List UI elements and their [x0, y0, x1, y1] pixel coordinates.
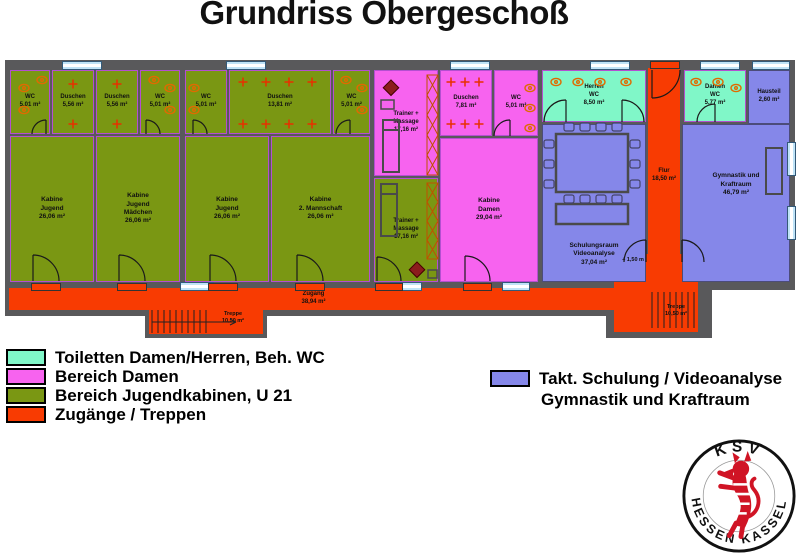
legend-label: Gymnastik und Kraftraum [541, 390, 750, 410]
room-label: Kabine Jugend Mädchen 26,06 m² [124, 192, 152, 226]
door-sill [208, 283, 238, 291]
room-duschen-3: Duschen 13,81 m² [229, 70, 331, 134]
legend-swatch-olive [6, 387, 46, 404]
door-sill [295, 283, 325, 291]
legend-swatch-orange [6, 406, 46, 423]
room-damen-wc: Damen WC 5,77 m² [684, 70, 746, 122]
label-treppe-left: Treppe 10,50 m² [206, 311, 260, 325]
window [752, 61, 790, 70]
room-gymnastik: Gymnastik und Kraftraum 46,79 m² [682, 124, 790, 282]
door-sill [650, 61, 680, 69]
room-label: Damen WC 5,77 m² [705, 84, 726, 107]
window [787, 206, 796, 240]
legend-swatch-blue [490, 370, 530, 387]
room-wc-jugend-1: WC 5,01 m² [10, 70, 50, 134]
room-label: Duschen 5,56 m² [60, 94, 85, 110]
room-label: Duschen 7,81 m² [453, 95, 478, 111]
room-kabine-2: Kabine Jugend Mädchen 26,06 m² [96, 136, 180, 282]
room-label: Flur 18,50 m² [652, 168, 676, 184]
room-label: WC 5,01 m² [150, 94, 171, 110]
room-kabine-1: Kabine Jugend 26,06 m² [10, 136, 94, 282]
room-label: Kabine 2. Mannschaft 26,06 m² [299, 196, 342, 221]
room-duschen-damen: Duschen 7,81 m² [440, 70, 492, 136]
legend-item-damen: Bereich Damen [6, 367, 325, 386]
legend-item-gymnastik: Gymnastik und Kraftraum [541, 390, 782, 409]
room-label: WC 5,01 m² [341, 94, 362, 110]
room-label: Gymnastik und Kraftraum 46,79 m² [713, 172, 760, 197]
window [787, 142, 796, 176]
room-label: Duschen 5,56 m² [104, 94, 129, 110]
page-title: Grundriss Obergeschoß [0, 0, 784, 32]
legend-item-schulung: Takt. Schulung / Videoanalyse [490, 369, 782, 388]
door-sill [31, 283, 61, 291]
legend-left: Toiletten Damen/Herren, Beh. WC Bereich … [6, 348, 325, 424]
window [226, 61, 266, 70]
legend-swatch-pink [6, 368, 46, 385]
door-sill [375, 283, 403, 291]
room-label: Kabine Jugend 26,06 m² [214, 196, 240, 221]
room-kabine-3: Kabine Jugend 26,06 m² [185, 136, 269, 282]
room-trainer-massage-gruen: Trainer + Massage 17,16 m² [374, 178, 438, 282]
room-label: Trainer + Massage 17,16 m² [393, 218, 418, 241]
room-hausteil: Hausteil 2,60 m² [748, 70, 790, 124]
window [700, 61, 740, 70]
legend-item-toiletten: Toiletten Damen/Herren, Beh. WC [6, 348, 325, 367]
legend-label: Bereich Damen [55, 367, 179, 387]
legend-label: Bereich Jugendkabinen, U 21 [55, 386, 292, 406]
page: Grundriss Obergeschoß Flur 18,50 m² Zuga… [0, 0, 800, 556]
label-level-marker: + 1,50 m [612, 257, 654, 264]
room-label: Hausteil 2,60 m² [757, 89, 780, 105]
window [590, 61, 630, 70]
room-label: Zugang 38,94 m² [301, 291, 325, 307]
room-wc-jugend-4: WC 5,01 m² [333, 70, 370, 134]
legend-swatch-mint [6, 349, 46, 366]
room-label: WC 5,01 m² [506, 95, 527, 111]
room-duschen-2: Duschen 5,56 m² [96, 70, 138, 134]
room-label: WC 5,01 m² [196, 94, 217, 110]
legend-label: Zugänge / Treppen [55, 405, 206, 425]
room-label: Kabine Jugend 26,06 m² [39, 196, 65, 221]
room-wc-damen: WC 5,01 m² [494, 70, 538, 136]
room-herren-wc: Herren WC 8,50 m² [542, 70, 646, 122]
room-zugang-corridor: Zugang 38,94 m² [9, 288, 618, 310]
legend-label: Toiletten Damen/Herren, Beh. WC [55, 348, 325, 368]
room-kabine-damen: Kabine Damen 29,04 m² [440, 138, 538, 282]
window [450, 61, 490, 70]
legend-item-zugaenge: Zugänge / Treppen [6, 405, 325, 424]
room-flur: Flur 18,50 m² [648, 68, 680, 284]
legend-label: Takt. Schulung / Videoanalyse [539, 369, 782, 389]
room-trainer-massage-pink: Trainer + Massage 17,16 m² [374, 70, 438, 176]
room-label: WC 5,01 m² [20, 94, 41, 110]
room-kabine-4: Kabine 2. Mannschaft 26,06 m² [271, 136, 370, 282]
legend-right: Takt. Schulung / Videoanalyse Gymnastik … [490, 369, 782, 409]
room-wc-jugend-2: WC 5,01 m² [140, 70, 180, 134]
room-label: Trainer + Massage 17,16 m² [393, 111, 418, 134]
window [62, 61, 102, 70]
door-sill [463, 283, 492, 291]
label-treppe-right: Treppe 10,50 m² [655, 304, 697, 318]
door-sill [117, 283, 147, 291]
room-label: Kabine Damen 29,04 m² [476, 197, 502, 222]
room-label: Herren WC 8,50 m² [584, 84, 605, 107]
legend-item-jugend: Bereich Jugendkabinen, U 21 [6, 386, 325, 405]
room-wc-jugend-3: WC 5,01 m² [185, 70, 227, 134]
room-label: Duschen 13,81 m² [267, 94, 292, 110]
window [502, 282, 530, 291]
club-logo: KSV HESSEN KASSEL [681, 438, 797, 554]
room-duschen-1: Duschen 5,56 m² [52, 70, 94, 134]
